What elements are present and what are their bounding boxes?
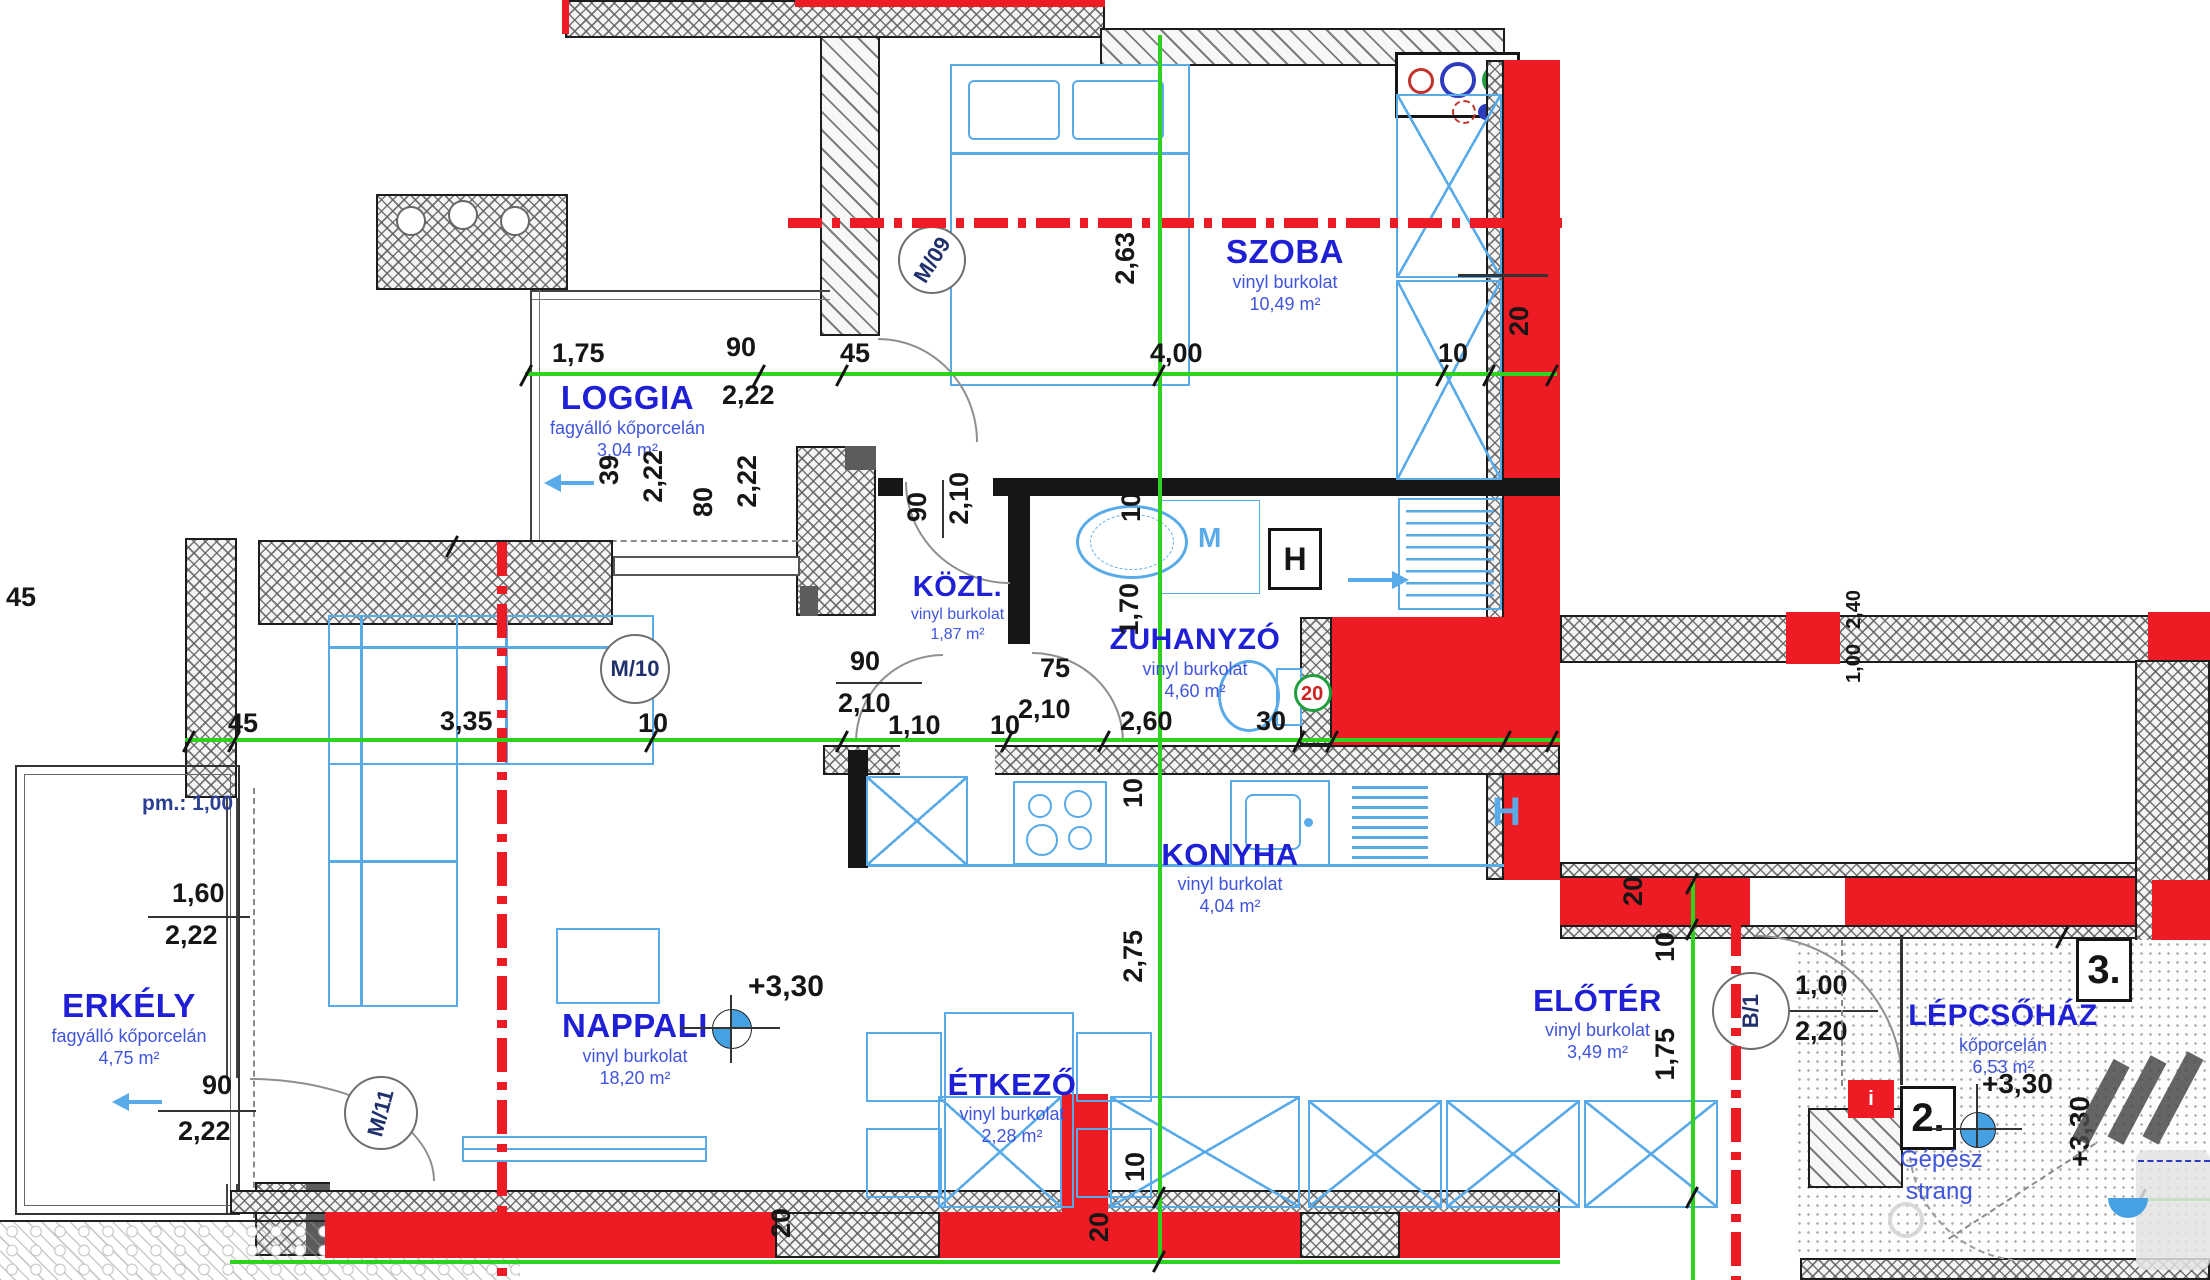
- dim-zd-w: 75: [1040, 655, 1070, 682]
- door-gap-kozl-south: [900, 743, 995, 777]
- dim-loggia-w: 1,75: [552, 340, 605, 367]
- dim-entry-h: 2,20: [1795, 1018, 1848, 1045]
- dim-z-off: 10: [1118, 492, 1145, 522]
- kitchen-h-label: H: [1492, 792, 1521, 832]
- dim-etkezo-h: 2,75: [1120, 930, 1147, 983]
- dim-k-off: 10: [1120, 778, 1147, 808]
- shaft-label-2: strang: [1906, 1178, 1973, 1206]
- elevation-cross-v: [730, 995, 732, 1063]
- frac-erkely-win: [148, 916, 250, 918]
- sofa-back-top: [328, 646, 654, 649]
- nappali-area: 18,20 m²: [520, 1068, 750, 1090]
- szoba-name: SZOBA: [1165, 232, 1405, 272]
- m10-label: M/10: [611, 656, 660, 682]
- dim-eloter-off: 10: [1652, 932, 1679, 962]
- m09-label: M/09: [908, 232, 956, 287]
- loggia-arrow-icon: [544, 474, 561, 492]
- burner-2: [1064, 790, 1092, 818]
- dim-line-vert-eloter: [1691, 880, 1695, 1280]
- sofa-back-left: [360, 615, 363, 1007]
- kozl-finish: vinyl burkolat: [880, 605, 1035, 625]
- section-line-vertical-left: [497, 542, 507, 1280]
- b1-label: B/1: [1738, 994, 1764, 1028]
- dim-loggia-wh: 2,22: [722, 382, 775, 409]
- door-marker-m09: M/09: [898, 226, 966, 294]
- dim-z-w: 2,60: [1120, 708, 1173, 735]
- blue-dashed-right: [2138, 1160, 2210, 1162]
- section-line-top-left-stub: [562, 0, 569, 40]
- szoba-finish: vinyl burkolat: [1165, 272, 1405, 294]
- storage-5: [1584, 1100, 1718, 1208]
- nappali-finish: vinyl burkolat: [520, 1046, 750, 1068]
- sink-drainer: [1352, 786, 1428, 864]
- dim-pass: 1,10: [888, 712, 941, 739]
- dryer-h-label: H: [1283, 543, 1306, 575]
- dim-lg4: 2,22: [734, 455, 761, 508]
- lepcsohaz-name: LÉPCSŐHÁZ: [1878, 998, 2128, 1035]
- wall-stair-north: [1560, 615, 2210, 663]
- stove: [1013, 781, 1107, 865]
- loggia-area: 3,04 m²: [520, 440, 735, 462]
- konyha-area: 4,04 m²: [1120, 896, 1340, 918]
- column-circle-3: [500, 206, 530, 236]
- loggia-finish: fagyálló kőporcelán: [520, 418, 735, 440]
- column-circle-1: [396, 206, 426, 236]
- dim-lg1: 39: [596, 455, 623, 485]
- section-line-vertical-right: [1731, 922, 1741, 1280]
- dim-stair-win-w: 1,00: [1844, 644, 1864, 683]
- elevation-nappali-label: +3,30: [748, 972, 824, 1002]
- burner-3: [1026, 824, 1058, 856]
- loggia-railing-top: [530, 290, 830, 300]
- wall-stair-north-red1: [1786, 612, 1840, 664]
- etkezo-area: 2,28 m²: [912, 1126, 1112, 1148]
- dim-wall-top: 20: [1506, 306, 1533, 336]
- dim-etkezo-off: 10: [1122, 1152, 1149, 1182]
- kozl-area: 1,87 m²: [880, 625, 1035, 645]
- room-label-etkezo: ÉTKEZŐ vinyl burkolat 2,28 m²: [912, 1066, 1112, 1148]
- szoba-area: 10,49 m²: [1165, 294, 1405, 316]
- dim-eloter-h: 1,75: [1652, 1028, 1679, 1081]
- dim-kozl-s-h: 2,10: [838, 690, 891, 717]
- coffee-table: [556, 928, 660, 1004]
- dim-bw1: 20: [1086, 1212, 1113, 1242]
- dim-nappali-w: 3,35: [440, 708, 493, 735]
- dim-entry-w: 1,00: [1795, 972, 1848, 999]
- dim-kozl-n-h: 2,10: [946, 472, 973, 525]
- dim-pm: pm.: 1,00: [142, 793, 233, 814]
- zuhanyzo-finish: vinyl burkolat: [1070, 659, 1320, 681]
- wall-corridor-insul: [1560, 862, 2210, 878]
- column-circle-2: [448, 200, 478, 230]
- wall-zuhanyzo-corner-red: [1332, 617, 1507, 745]
- frac-kozl-s: [836, 682, 922, 684]
- sofa-cushion-line2: [328, 860, 458, 863]
- washing-machine-lines: [1406, 510, 1494, 598]
- dim-bw2: 20: [768, 1208, 795, 1238]
- unit-3-label: 3.: [2087, 948, 2120, 993]
- dim-line-mid: [185, 738, 1560, 742]
- door-marker-m11: M/11: [344, 1076, 418, 1150]
- lepcsohaz-finish: kőporcelán: [1878, 1035, 2128, 1057]
- frac-kozl-n: [942, 480, 944, 538]
- door-marker-m10: M/10: [600, 634, 670, 704]
- sink-faucet: [1304, 818, 1313, 827]
- dim-kozl-n-w: 90: [904, 492, 931, 522]
- dim-erkely-door-w: 90: [202, 1072, 232, 1099]
- bed-blanket-line: [950, 152, 1190, 155]
- dim-erkely-win-w: 1,60: [172, 880, 225, 907]
- dim-stair-win-h: 2,40: [1844, 590, 1864, 629]
- floor-plan: i H M H: [0, 0, 2210, 1280]
- watermark-ring: [1888, 1202, 1924, 1238]
- etkezo-finish: vinyl burkolat: [912, 1104, 1112, 1126]
- dim-erkely-wall: 45: [6, 584, 36, 611]
- zuhanyzo-name: ZUHANYZÓ: [1070, 622, 1320, 659]
- dim-wall-left: 45: [228, 710, 258, 737]
- dim-z-v: 1,70: [1116, 583, 1143, 636]
- elevation-symbol-nappali: [712, 1009, 752, 1049]
- dim-door-top-w: 90: [726, 334, 756, 361]
- erkely-arrow-line: [128, 1100, 162, 1104]
- dim-zd-h: 2,10: [1018, 696, 1071, 723]
- erkely-arrow-icon: [112, 1093, 129, 1111]
- bed-pillow-1: [968, 80, 1060, 140]
- dim-eloter-wall: 20: [1620, 876, 1647, 906]
- sofa-left-section: [328, 615, 458, 1007]
- dim-line-bottom: [230, 1260, 1560, 1264]
- dim-lg2: 2,22: [640, 450, 667, 503]
- wall-block-a: [845, 446, 876, 470]
- wall-eloter-stair: [1808, 1108, 1903, 1188]
- entry-dashed-line: [1841, 940, 1843, 1086]
- wall-corridor-red-a: [1560, 878, 1750, 925]
- wardrobe-szoba-top: [1396, 94, 1502, 278]
- dim-off2: 10: [990, 712, 1020, 739]
- bed-pillow-2: [1072, 80, 1164, 140]
- door-marker-b1: B/1: [1712, 972, 1790, 1050]
- wall-top-red-strip: [795, 0, 1105, 7]
- wardrobe-divider-line: [1458, 274, 1548, 277]
- konyha-name: KONYHA: [1120, 836, 1340, 874]
- eloter-name: ELŐTÉR: [1500, 982, 1695, 1020]
- unit-2-box: 2.: [1900, 1086, 1956, 1150]
- room-label-szoba: SZOBA vinyl burkolat 10,49 m²: [1165, 232, 1405, 316]
- dim-szoba-h: 2,63: [1112, 232, 1139, 285]
- unit-2-label: 2.: [1911, 1096, 1944, 1141]
- room-label-lepcsohaz: LÉPCSŐHÁZ kőporcelán 6,53 m²: [1878, 998, 2128, 1079]
- dim-door-top-off: 45: [840, 340, 870, 367]
- window-loggia-nappali: [613, 556, 800, 576]
- dim-lg3: 80: [690, 487, 717, 517]
- dim-erkely-win-h: 2,22: [165, 922, 218, 949]
- wall-nappali-left: [185, 538, 237, 798]
- storage-4: [1446, 1100, 1580, 1208]
- flow-arrow-right-line: [1348, 578, 1394, 582]
- dim-z-wall2: 20: [1301, 684, 1323, 704]
- entry-i-label: i: [1868, 1088, 1874, 1111]
- elevation-stair-label: +3,30: [1982, 1070, 2053, 1098]
- dim-kozl-s-w: 90: [850, 648, 880, 675]
- burner-4: [1068, 826, 1092, 850]
- zuhanyzo-area: 4,60 m²: [1070, 681, 1320, 703]
- erkely-finish: fagyálló kőporcelán: [18, 1026, 240, 1048]
- elevation-symbol-stair: [1960, 1112, 1996, 1148]
- erkely-area: 4,75 m²: [18, 1048, 240, 1070]
- entry-threshold: i: [1848, 1080, 1894, 1118]
- loggia-arrow-line: [560, 481, 594, 485]
- watermark-blob: [2136, 1150, 2210, 1270]
- unit-3-box: 3.: [2076, 938, 2132, 1002]
- room-label-loggia: LOGGIA fagyálló kőporcelán 3,04 m²: [520, 378, 735, 462]
- wall-bottom-gap2: [1300, 1212, 1400, 1258]
- wall-konyha-stub: [848, 750, 868, 868]
- dim-line-top: [525, 372, 1557, 376]
- loggia-name: LOGGIA: [520, 378, 735, 418]
- room-label-zuhanyzo: ZUHANYZÓ vinyl burkolat 4,60 m²: [1070, 622, 1320, 703]
- room-label-kozl: KÖZL. vinyl burkolat 1,87 m²: [880, 570, 1035, 644]
- washer-m-label: M: [1198, 524, 1221, 552]
- room-label-konyha: KONYHA vinyl burkolat 4,04 m²: [1120, 836, 1340, 918]
- section-line-horizontal: [788, 218, 1562, 228]
- erkely-name: ERKÉLY: [18, 986, 240, 1026]
- etkezo-name: ÉTKEZŐ: [912, 1066, 1112, 1104]
- wall-block-b: [800, 586, 818, 616]
- elevation-cross-v2: [1976, 1084, 1978, 1148]
- dim-szoba-w: 4,00: [1150, 340, 1203, 367]
- pipe-red-icon: [1408, 68, 1434, 94]
- m11-label: M/11: [362, 1087, 399, 1140]
- shaft-label-1: Gépész: [1900, 1146, 1983, 1174]
- burner-1: [1028, 794, 1052, 818]
- wall-bottom-gap1: [775, 1212, 940, 1258]
- frac-erkely-door: [158, 1110, 256, 1112]
- room-label-erkely: ERKÉLY fagyálló kőporcelán 4,75 m²: [18, 986, 240, 1070]
- fridge: [866, 776, 968, 866]
- konyha-finish: vinyl burkolat: [1120, 874, 1340, 896]
- dryer-box: H: [1268, 528, 1322, 590]
- kozl-name: KÖZL.: [880, 570, 1035, 605]
- wall-stair-north-red2: [2148, 612, 2210, 664]
- frac-entry: [1790, 1010, 1878, 1012]
- wall-under-loggia: [258, 540, 613, 625]
- dim-erkely-door-h: 2,22: [178, 1118, 231, 1145]
- storage-3: [1308, 1100, 1442, 1208]
- pipe-blue-icon: [1440, 62, 1476, 98]
- dim-off1: 10: [638, 710, 668, 737]
- dim-z-wall: 30: [1256, 708, 1286, 735]
- dim-szoba-off: 10: [1438, 340, 1468, 367]
